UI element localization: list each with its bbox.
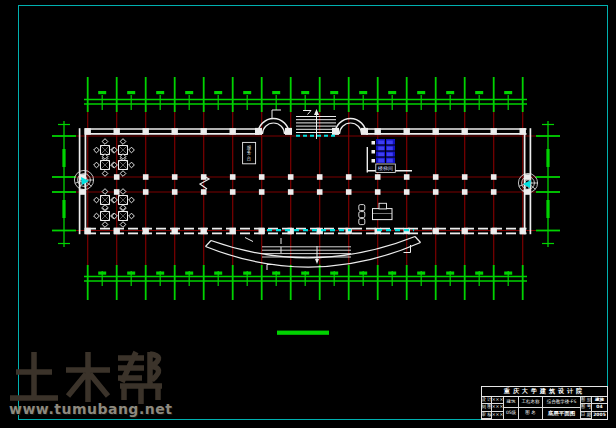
tb-value: 04 <box>592 404 607 411</box>
cad-drawing-canvas: 楼梯间服务台 www.tumubang.net 重庆大学建筑设计院 设 计 ××… <box>0 0 616 428</box>
tb-label: 工程名称 <box>519 397 543 408</box>
chair-icon <box>120 189 126 195</box>
tb-label: 图 别 <box>581 397 592 404</box>
title-block-header: 重庆大学建筑设计院 <box>482 387 607 397</box>
stair-shaft: 楼梯间 <box>367 139 412 173</box>
tb-value: ××× <box>492 397 504 404</box>
tb-label: 制 图 <box>482 404 492 411</box>
title-block-signatures: 设 计 ××× 制 图 ××× 审 核 ××× <box>482 397 504 419</box>
title-block-class: 建筑 05级 <box>504 397 519 419</box>
curved-entrance-steps <box>206 237 421 271</box>
dimension-line-top <box>84 77 527 112</box>
chair-icon <box>129 162 135 168</box>
tb-project-name: 综合教学楼-FS <box>543 397 581 408</box>
chair-icon <box>120 171 126 177</box>
chair-icon <box>129 197 135 203</box>
title-block-project: 综合教学楼-FS 底层平面图 <box>543 397 581 419</box>
tb-value: 建施 <box>592 397 607 404</box>
desk-icon <box>373 209 393 220</box>
reception-desk <box>359 203 392 224</box>
chair-icon <box>129 213 135 219</box>
chair-icon <box>120 139 126 145</box>
chair-icon <box>94 162 100 168</box>
tb-drawing-title: 底层平面图 <box>543 408 581 419</box>
chair-icon <box>94 147 100 153</box>
dimension-line-left <box>52 121 76 247</box>
stool-icon <box>359 212 365 218</box>
tb-value: 05级 <box>504 408 519 419</box>
watermark-url: www.tumubang.net <box>9 401 172 417</box>
exterior-walls <box>80 128 531 234</box>
tb-value: ××× <box>492 412 504 419</box>
tb-value: 建筑 <box>504 397 519 408</box>
tb-value: 2005 <box>592 412 607 419</box>
chair-icon <box>102 139 108 145</box>
dining-tables <box>94 139 135 228</box>
chair-icon <box>129 147 135 153</box>
tb-label: 日 期 <box>581 412 592 419</box>
tb-label: 设 计 <box>482 397 492 404</box>
tb-value: ××× <box>492 404 504 411</box>
service-desk-label-text: 服务台 <box>247 145 252 162</box>
entrance-stair <box>272 109 336 139</box>
chair-icon <box>94 197 100 203</box>
service-desk-label: 服务台 <box>243 142 256 163</box>
chair-icon <box>120 222 126 228</box>
dimension-line-bottom <box>84 265 527 300</box>
structural-columns <box>80 128 531 234</box>
title-block-meta: 图 别 建施 图 号 04 日 期 2005 <box>581 397 607 419</box>
chair-icon <box>102 189 108 195</box>
chair-icon <box>102 171 108 177</box>
watermark-logo-icon <box>8 346 170 408</box>
stair-room-label: 楼梯间 <box>377 165 393 172</box>
spiral-stair-left <box>74 170 93 189</box>
tb-label: 审 核 <box>482 412 492 419</box>
stool-icon <box>359 219 365 225</box>
scale-bar <box>277 331 329 335</box>
title-block: 重庆大学建筑设计院 设 计 ××× 制 图 ××× 审 核 ××× 建筑 05级… <box>481 386 608 420</box>
dimension-line-right <box>536 121 560 247</box>
chair-icon <box>94 213 100 219</box>
tb-label: 图 名 <box>519 408 543 419</box>
stool-icon <box>359 205 365 211</box>
title-block-field-names: 工程名称 图 名 <box>519 397 543 419</box>
chair-icon <box>102 222 108 228</box>
tb-label: 图 号 <box>581 404 592 411</box>
spiral-stair-right <box>518 173 537 192</box>
